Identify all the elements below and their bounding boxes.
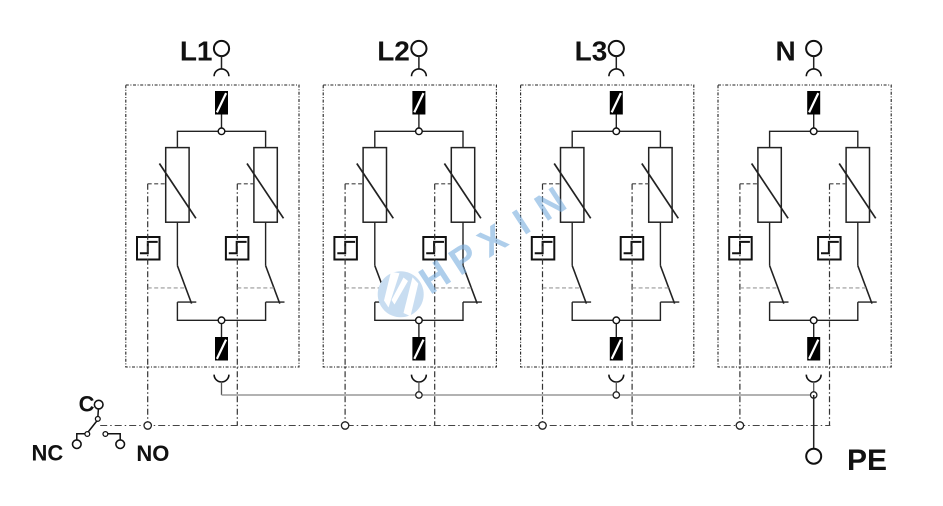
svg-text:L2: L2 [377,36,410,67]
svg-text:NO: NO [136,441,169,466]
svg-text:N: N [775,36,795,67]
svg-text:L1: L1 [180,36,213,67]
svg-text:NC: NC [32,441,64,466]
svg-text:PE: PE [847,444,887,477]
svg-text:C: C [79,392,95,417]
svg-text:L3: L3 [575,36,608,67]
svg-text:I: I [506,202,538,243]
